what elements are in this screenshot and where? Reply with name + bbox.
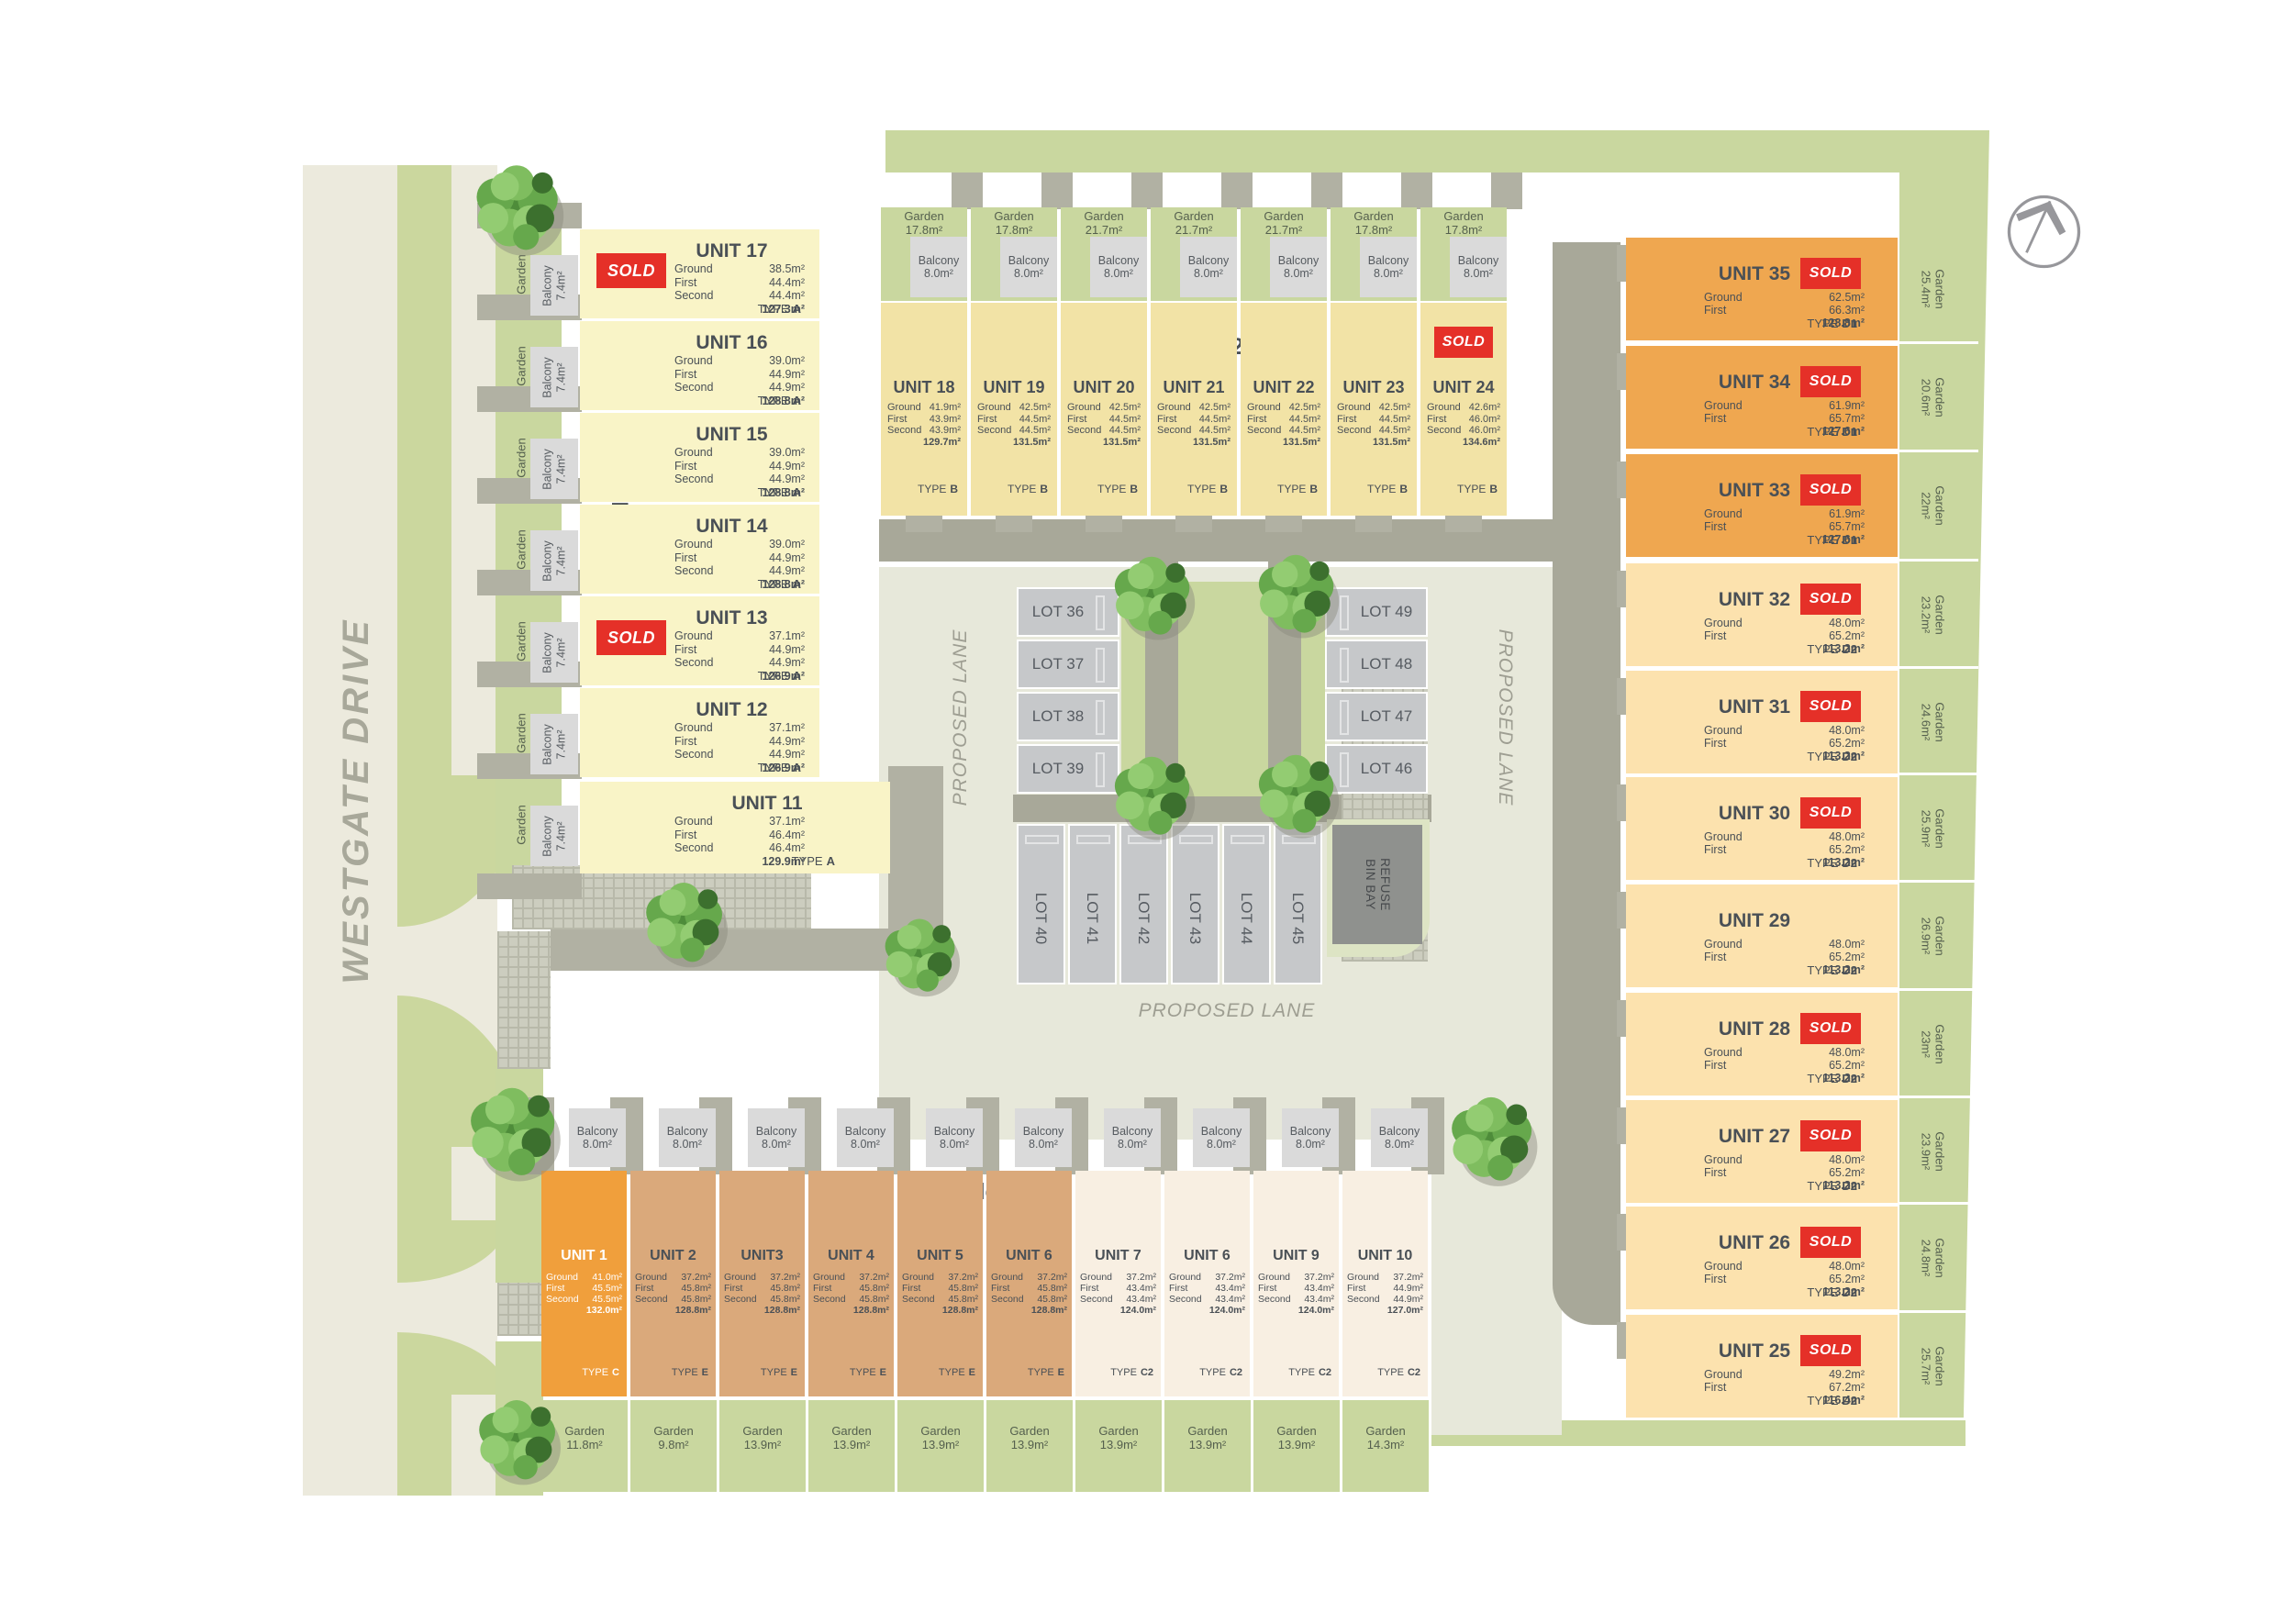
unit-type: TYPEA <box>758 394 801 407</box>
unit-type: TYPEB <box>1187 483 1228 495</box>
unit-areas: Ground37.2m²First45.8m²Second45.8m²128.8… <box>813 1272 889 1316</box>
unit-unit-12[interactable]: UNIT 12Ground37.1m²First44.9m²Second44.9… <box>580 688 819 777</box>
info-label: Ground <box>674 629 713 643</box>
info-value: 66.3m² <box>1829 304 1865 317</box>
balcony: Balcony8.0m² <box>1450 237 1507 297</box>
balcony: Balcony8.0m² <box>910 237 967 297</box>
garden-line2: 17.8m² <box>1420 223 1507 237</box>
info-label: Ground <box>1258 1272 1290 1283</box>
balcony-label: Balcony7.4m² <box>540 540 567 581</box>
unit-unit-21[interactable]: UNIT 21Ground42.5m²First44.5m²Second44.5… <box>1151 303 1237 516</box>
unit-type: TYPEB <box>1457 483 1498 495</box>
garden-label-line1: Garden <box>515 713 529 752</box>
info-label: Ground <box>674 721 713 735</box>
unit-unit-20[interactable]: UNIT 20Ground42.5m²First44.5m²Second44.5… <box>1061 303 1147 516</box>
info-row: Second45.5m² <box>546 1294 622 1305</box>
garden-label-text: Garden26.9m² <box>1920 916 1947 955</box>
lot-lot-38[interactable]: LOT 38 <box>1017 692 1119 741</box>
unit-type: TYPEB <box>1097 483 1138 495</box>
info-value: 43.4m² <box>1215 1283 1245 1294</box>
balcony: Balcony8.0m² <box>569 1108 626 1167</box>
balcony-line1: Balcony <box>1008 254 1049 268</box>
garden-label-text: Garden23m² <box>1920 1024 1947 1063</box>
unit-unit-25[interactable]: UNIT 25SOLDGround49.2m²First67.2m²116.4m… <box>1626 1315 1898 1418</box>
info-label: First <box>546 1283 564 1294</box>
balcony-line1: Balcony <box>845 1125 885 1139</box>
type-label: TYPE <box>1008 483 1036 495</box>
garden-label-line2: 23.2m² <box>1920 595 1933 634</box>
unit-unit-28[interactable]: UNIT 28SOLDGround48.0m²First65.2m²113.2m… <box>1626 993 1898 1096</box>
lot-label: LOT 38 <box>1032 707 1084 726</box>
info-label: Second <box>1258 1294 1291 1305</box>
info-row: First44.9m² <box>674 643 805 657</box>
balcony-label: Balcony8.0m² <box>577 1125 618 1151</box>
sold-badge: SOLD <box>1800 584 1861 615</box>
lot-lot-48[interactable]: LOT 48 <box>1325 640 1428 689</box>
info-value: 49.2m² <box>1829 1368 1865 1381</box>
info-value: 44.9m² <box>769 564 805 578</box>
balcony-line1: Balcony <box>756 1125 796 1139</box>
tree-icon <box>451 1070 573 1191</box>
lot-label: LOT 36 <box>1032 603 1084 621</box>
info-label: Ground <box>1169 1272 1201 1283</box>
info-value: 37.1m² <box>769 629 805 643</box>
unit-total-area: 131.5m² <box>1337 437 1410 449</box>
unit-name: UNIT 15 <box>653 424 810 446</box>
info-value: 61.9m² <box>1829 399 1865 412</box>
tree-icon <box>629 866 739 976</box>
info-row: Second43.4m² <box>1258 1294 1334 1305</box>
lot-lot-45[interactable]: LOT 45 <box>1274 824 1322 984</box>
unit-unit-15[interactable]: UNIT 15Ground39.0m²First44.9m²Second44.9… <box>580 413 819 502</box>
garden-line1: Garden <box>1253 1424 1340 1438</box>
info-label: Ground <box>887 402 921 414</box>
unit-name: UNIT 9 <box>1253 1248 1339 1264</box>
info-value: 39.0m² <box>769 538 805 551</box>
unit-total-area: 129.7m² <box>887 437 961 449</box>
info-value: 65.2m² <box>1829 843 1865 856</box>
info-row: Second43.4m² <box>1080 1294 1156 1305</box>
info-label: Second <box>1157 425 1191 437</box>
garden-label: Garden25.9m² <box>1901 777 1965 880</box>
unit-type: TYPED2 <box>1807 750 1857 763</box>
info-value: 45.8m² <box>681 1283 711 1294</box>
info-row: Ground41.0m² <box>546 1272 622 1283</box>
balcony-label: Balcony8.0m² <box>1201 1125 1242 1151</box>
balcony: Balcony8.0m² <box>1104 1108 1161 1167</box>
info-value: 37.1m² <box>769 815 805 829</box>
info-value: 48.0m² <box>1829 1046 1865 1059</box>
sold-badge: SOLD <box>1800 474 1861 506</box>
info-row: First65.2m² <box>1704 1059 1865 1072</box>
lot-lot-44[interactable]: LOT 44 <box>1222 824 1271 984</box>
balcony-line2: 8.0m² <box>1278 267 1319 281</box>
info-row: First43.4m² <box>1080 1283 1156 1294</box>
unit-name: UNIT 1 <box>541 1248 627 1264</box>
balcony-line1: Balcony <box>540 632 554 673</box>
unit-unit-34[interactable]: UNIT 34SOLDGround61.9m²First65.7m²127.6m… <box>1626 346 1898 449</box>
unit-total-area: 128.8m² <box>724 1305 800 1316</box>
unit-name: UNIT 12 <box>653 699 810 721</box>
unit-type: TYPED2 <box>1807 963 1857 977</box>
info-label: Ground <box>674 815 713 829</box>
garden-line1: Garden <box>986 1424 1073 1438</box>
sold-badge: SOLD <box>1800 1227 1861 1258</box>
balcony-line1: Balcony <box>540 724 554 764</box>
info-row: Ground42.6m² <box>1427 402 1500 414</box>
type-letter: A <box>793 302 801 316</box>
unit-areas: Ground37.2m²First45.8m²Second45.8m²128.8… <box>724 1272 800 1316</box>
balcony-line1: Balcony <box>540 357 554 397</box>
balcony: Balcony7.4m² <box>530 347 578 407</box>
info-value: 65.2m² <box>1829 737 1865 750</box>
unit-total-area: 127.0m² <box>1347 1305 1423 1316</box>
info-row: Ground49.2m² <box>1704 1368 1865 1381</box>
info-row: First46.0m² <box>1427 414 1500 426</box>
balcony: Balcony7.4m² <box>530 530 578 591</box>
unit-unit-27[interactable]: UNIT 27SOLDGround48.0m²First65.2m²113.2m… <box>1626 1100 1898 1203</box>
unit-type: TYPEA <box>792 854 835 868</box>
info-value: 39.0m² <box>769 354 805 368</box>
info-value: 44.5m² <box>1109 414 1141 426</box>
lot-label: LOT 43 <box>1186 892 1205 943</box>
balcony: Balcony8.0m² <box>837 1108 894 1167</box>
info-row: First44.5m² <box>1067 414 1141 426</box>
unit-unit-17[interactable]: UNIT 17SOLDGround38.5m²First44.4m²Second… <box>580 229 819 318</box>
type-letter: C2 <box>1141 1367 1153 1378</box>
garden-plot: Garden13.9m² <box>986 1400 1073 1492</box>
garden-label-line1: Garden <box>1933 269 1947 308</box>
info-label: First <box>991 1283 1009 1294</box>
garden-separator <box>1899 1202 1978 1205</box>
tree-icon <box>462 1384 572 1494</box>
balcony-line2: 8.0m² <box>1023 1138 1063 1151</box>
garden-label-text: Garden25.9m² <box>1920 808 1947 848</box>
info-value: 42.5m² <box>1109 402 1141 414</box>
info-row: First65.2m² <box>1704 737 1865 750</box>
unit-areas: Ground37.2m²First44.9m²Second44.9m²127.0… <box>1347 1272 1423 1316</box>
unit-unit-11[interactable]: UNIT 11Ground37.1m²First46.4m²Second46.4… <box>580 782 890 873</box>
info-label: Ground <box>724 1272 756 1283</box>
unit-type: TYPEE <box>939 1367 975 1378</box>
unit-name: UNIT 16 <box>653 332 810 354</box>
type-letter: D2 <box>1842 750 1857 763</box>
garden-label-line1: Garden <box>1933 485 1947 525</box>
balcony-label: Balcony8.0m² <box>1008 254 1049 281</box>
balcony-label: Balcony7.4m² <box>540 816 567 856</box>
balcony-line1: Balcony <box>1379 1125 1420 1139</box>
balcony: Balcony8.0m² <box>1000 237 1057 297</box>
info-row: First44.9m² <box>674 460 805 473</box>
garden-label-line2: 22m² <box>1920 485 1933 525</box>
balcony-line1: Balcony <box>540 265 554 306</box>
info-row: Ground42.5m² <box>977 402 1051 414</box>
unit-unit-4[interactable]: UNIT 4Ground37.2m²First45.8m²Second45.8m… <box>808 1171 894 1396</box>
unit-unit-29[interactable]: UNIT 29Ground48.0m²First65.2m²113.2m²TYP… <box>1626 884 1898 987</box>
info-value: 42.5m² <box>1019 402 1051 414</box>
parking-divider-icon <box>1096 648 1105 683</box>
info-value: 44.9m² <box>769 656 805 670</box>
unit-unit-22[interactable]: UNIT 22Ground42.5m²First44.5m²Second44.5… <box>1241 303 1327 516</box>
info-value: 45.8m² <box>948 1294 978 1305</box>
balcony-line2: 7.4m² <box>554 449 568 489</box>
info-row: Ground37.2m² <box>813 1272 889 1283</box>
info-row: Ground37.2m² <box>1258 1272 1334 1283</box>
info-label: Second <box>1067 425 1101 437</box>
type-label: TYPE <box>758 302 789 316</box>
type-label: TYPE <box>1807 425 1838 439</box>
info-label: Ground <box>1247 402 1281 414</box>
info-label: First <box>1704 843 1726 856</box>
garden-label-line2: 23m² <box>1920 1024 1933 1063</box>
unit-areas: Ground37.2m²First45.8m²Second45.8m²128.8… <box>991 1272 1067 1316</box>
info-value: 45.8m² <box>859 1283 889 1294</box>
info-value: 44.5m² <box>1289 425 1320 437</box>
info-value: 44.5m² <box>1109 425 1141 437</box>
unit-unit-6[interactable]: UNIT 6Ground37.2m²First43.4m²Second43.4m… <box>1164 1171 1250 1396</box>
tree-icon <box>1097 540 1206 649</box>
info-value: 65.7m² <box>1829 520 1865 533</box>
type-letter: B <box>1040 483 1048 495</box>
info-row: First65.2m² <box>1704 1273 1865 1285</box>
sold-badge: SOLD <box>1800 1335 1861 1366</box>
info-row: Ground37.2m² <box>724 1272 800 1283</box>
info-row: First65.2m² <box>1704 843 1865 856</box>
info-row: Second45.8m² <box>902 1294 978 1305</box>
info-label: First <box>674 460 696 473</box>
info-row: First45.8m² <box>902 1283 978 1294</box>
unit-unit-10[interactable]: UNIT 10Ground37.2m²First44.9m²Second44.9… <box>1342 1171 1428 1396</box>
unit-unit-30[interactable]: UNIT 30SOLDGround48.0m²First65.2m²113.2m… <box>1626 777 1898 880</box>
garden-label-text: Garden20.6m² <box>1920 377 1947 417</box>
type-letter: D2 <box>1842 642 1857 656</box>
info-value: 48.0m² <box>1829 830 1865 843</box>
unit-type: TYPEE <box>672 1367 708 1378</box>
balcony-label: Balcony8.0m² <box>1023 1125 1063 1151</box>
unit-unit-7[interactable]: UNIT 7Ground37.2m²First43.4m²Second43.4m… <box>1075 1171 1161 1396</box>
info-value: 65.2m² <box>1829 1166 1865 1179</box>
garden-label: Garden26.9m² <box>1901 884 1965 987</box>
lot-lot-47[interactable]: LOT 47 <box>1325 692 1428 741</box>
unit-total-area: 128.8m² <box>813 1305 889 1316</box>
info-value: 45.8m² <box>770 1283 800 1294</box>
garden-label-line2: 24.8m² <box>1920 1238 1933 1277</box>
info-row: First66.3m² <box>1704 304 1865 317</box>
type-label: TYPE <box>1288 1367 1315 1378</box>
unit-unit-35[interactable]: UNIT 35SOLDGround62.5m²First66.3m²128.8m… <box>1626 238 1898 340</box>
balcony-label: Balcony8.0m² <box>756 1125 796 1151</box>
unit-unit-6[interactable]: UNIT 6Ground37.2m²First45.8m²Second45.8m… <box>986 1171 1072 1396</box>
info-row: Second44.9m² <box>674 381 805 395</box>
info-value: 44.9m² <box>769 381 805 395</box>
info-label: Ground <box>1704 724 1743 737</box>
unit-unit-13[interactable]: UNIT 13SOLDGround37.1m²First44.9m²Second… <box>580 596 819 685</box>
unit-unit-23[interactable]: UNIT 23Ground42.5m²First44.5m²Second44.5… <box>1331 303 1417 516</box>
info-label: Ground <box>1704 1046 1743 1059</box>
type-letter: C2 <box>1319 1367 1331 1378</box>
type-label: TYPE <box>1807 963 1838 977</box>
type-letter: E <box>880 1367 886 1378</box>
garden-label-text: Garden25.4m² <box>1920 269 1947 308</box>
info-label: First <box>1427 414 1446 426</box>
proposed-lane-label-right: PROPOSED LANE <box>1485 587 1525 848</box>
garden-separator <box>1899 450 1978 452</box>
info-value: 46.4m² <box>769 829 805 842</box>
unit-areas: Ground41.9m²First43.9m²Second43.9m²129.7… <box>887 402 961 448</box>
info-row: Second45.8m² <box>813 1294 889 1305</box>
unit-name: UNIT 23 <box>1331 378 1417 397</box>
refuse-label: REFUSE BIN BAY <box>1363 858 1392 911</box>
unit-unit-31[interactable]: UNIT 31SOLDGround48.0m²First65.2m²113.2m… <box>1626 671 1898 773</box>
proposed-lane-label-left: PROPOSED LANE <box>941 587 981 848</box>
lane-block4 <box>1553 242 1620 1325</box>
info-value: 42.6m² <box>1469 402 1500 414</box>
info-value: 37.2m² <box>1037 1272 1067 1283</box>
balcony-line2: 7.4m² <box>554 816 568 856</box>
balcony-line1: Balcony <box>1290 1125 1331 1139</box>
garden-label-line1: Garden <box>515 805 529 844</box>
unit-name: UNIT 7 <box>1075 1248 1161 1264</box>
driveway <box>952 172 983 209</box>
info-value: 44.5m² <box>1379 414 1410 426</box>
garden-line1: Garden <box>1342 1424 1429 1438</box>
lot-label: LOT 37 <box>1032 655 1084 673</box>
info-label: Ground <box>1157 402 1191 414</box>
unit-name: UNIT 5 <box>897 1248 983 1264</box>
info-value: 43.4m² <box>1215 1294 1245 1305</box>
balcony-line2: 8.0m² <box>845 1138 885 1151</box>
unit-total-area: 124.0m² <box>1080 1305 1156 1316</box>
balcony-label: Balcony8.0m² <box>1278 254 1319 281</box>
unit-name: UNIT 6 <box>986 1248 1072 1264</box>
type-label: TYPE <box>1807 750 1838 763</box>
unit-unit-18[interactable]: UNIT 18Ground41.9m²First43.9m²Second43.9… <box>881 303 967 516</box>
info-row: Second44.5m² <box>1337 425 1410 437</box>
unit-unit-16[interactable]: UNIT 16Ground39.0m²First44.9m²Second44.9… <box>580 321 819 410</box>
garden-plot: Garden13.9m² <box>1075 1400 1162 1492</box>
info-row: First44.5m² <box>1247 414 1320 426</box>
garden-separator <box>1899 988 1978 991</box>
unit-name: UNIT 10 <box>1342 1248 1428 1264</box>
info-label: Ground <box>1704 507 1743 520</box>
balcony-label: Balcony8.0m² <box>919 254 959 281</box>
garden-line2: 17.8m² <box>1331 223 1417 237</box>
info-value: 37.2m² <box>770 1272 800 1283</box>
info-row: Ground42.5m² <box>1337 402 1410 414</box>
type-label: TYPE <box>1457 483 1486 495</box>
unit-unit-24[interactable]: UNIT 24SOLDGround42.6m²First46.0m²Second… <box>1420 303 1507 516</box>
driveway <box>1311 172 1342 209</box>
info-label: Ground <box>1704 291 1743 304</box>
info-label: Second <box>674 473 713 486</box>
garden-line2: 21.7m² <box>1061 223 1147 237</box>
balcony: Balcony8.0m² <box>926 1108 983 1167</box>
lot-label: LOT 39 <box>1032 760 1084 778</box>
info-label: First <box>1704 1166 1726 1179</box>
info-label: First <box>674 643 696 657</box>
balcony-label: Balcony8.0m² <box>1458 254 1498 281</box>
unit-type: TYPEC2 <box>1377 1367 1420 1378</box>
info-label: First <box>1704 629 1726 642</box>
info-value: 42.5m² <box>1289 402 1320 414</box>
info-row: Ground48.0m² <box>1704 724 1865 737</box>
garden-plot: Garden13.9m² <box>1164 1400 1251 1492</box>
garden-label: Garden22m² <box>1901 454 1965 557</box>
unit-areas: Ground37.2m²First43.4m²Second43.4m²124.0… <box>1258 1272 1334 1316</box>
unit-unit3[interactable]: UNIT3Ground37.2m²First45.8m²Second45.8m²… <box>719 1171 805 1396</box>
unit-unit-33[interactable]: UNIT 33SOLDGround61.9m²First65.7m²127.6m… <box>1626 454 1898 557</box>
unit-unit-5[interactable]: UNIT 5Ground37.2m²First45.8m²Second45.8m… <box>897 1171 983 1396</box>
balcony-line2: 7.4m² <box>554 265 568 306</box>
info-row: First45.8m² <box>991 1283 1067 1294</box>
unit-name: UNIT 29 <box>1681 910 1828 932</box>
garden-label-line1: Garden <box>515 438 529 477</box>
unit-unit-14[interactable]: UNIT 14Ground39.0m²First44.9m²Second44.9… <box>580 505 819 594</box>
garden-line1: Garden <box>881 209 967 223</box>
info-row: Second43.4m² <box>1169 1294 1245 1305</box>
unit-unit-2[interactable]: UNIT 2Ground37.2m²First45.8m²Second45.8m… <box>630 1171 716 1396</box>
info-value: 37.2m² <box>859 1272 889 1283</box>
unit-unit-32[interactable]: UNIT 32SOLDGround48.0m²First65.2m²113.2m… <box>1626 563 1898 666</box>
garden-label-line1: Garden <box>1933 595 1947 634</box>
type-letter: E <box>1058 1367 1064 1378</box>
balcony-line1: Balcony <box>1188 254 1229 268</box>
garden-label-line1: Garden <box>1933 702 1947 741</box>
unit-name: UNIT 6 <box>1164 1248 1250 1264</box>
boundary-green-top <box>885 130 1987 172</box>
unit-unit-26[interactable]: UNIT 26SOLDGround48.0m²First65.2m²113.2m… <box>1626 1207 1898 1309</box>
info-row: First65.7m² <box>1704 520 1865 533</box>
type-letter: D1 <box>1842 533 1857 547</box>
lot-lot-40[interactable]: LOT 40 <box>1017 824 1065 984</box>
garden-line1: Garden <box>808 1424 895 1438</box>
garden-label-line2: 25.7m² <box>1920 1346 1933 1385</box>
balcony-line1: Balcony <box>540 540 554 581</box>
info-label: Second <box>813 1294 846 1305</box>
unit-unit-9[interactable]: UNIT 9Ground37.2m²First43.4m²Second43.4m… <box>1253 1171 1339 1396</box>
info-label: Ground <box>977 402 1011 414</box>
unit-unit-19[interactable]: UNIT 19Ground42.5m²First44.5m²Second44.5… <box>971 303 1057 516</box>
unit-unit-1[interactable]: UNIT 1Ground41.0m²First45.5m²Second45.5m… <box>541 1171 627 1396</box>
info-label: First <box>1169 1283 1187 1294</box>
unit-name: UNIT 2 <box>630 1248 716 1264</box>
garden-label: Garden21.7m² <box>1061 209 1147 239</box>
type-label: TYPE <box>758 761 789 774</box>
info-value: 45.8m² <box>1037 1294 1067 1305</box>
info-label: First <box>902 1283 920 1294</box>
garden-label-text: Garden22m² <box>1920 485 1947 525</box>
info-row: First46.4m² <box>674 829 805 842</box>
garden-label: Garden24.8m² <box>1901 1207 1965 1309</box>
info-label: First <box>1704 1059 1726 1072</box>
info-row: First43.4m² <box>1169 1283 1245 1294</box>
info-label: Second <box>887 425 921 437</box>
info-row: Second46.0m² <box>1427 425 1500 437</box>
balcony-line2: 8.0m² <box>1368 267 1409 281</box>
balcony-label: Balcony7.4m² <box>540 724 567 764</box>
info-row: Ground48.0m² <box>1704 1153 1865 1166</box>
unit-type: TYPEE <box>1028 1367 1064 1378</box>
sold-badge: SOLD <box>1800 366 1861 397</box>
unit-total-area: 124.0m² <box>1258 1305 1334 1316</box>
info-row: First65.7m² <box>1704 412 1865 425</box>
info-row: First44.4m² <box>674 276 805 290</box>
info-label: Second <box>674 656 713 670</box>
garden-line1: Garden <box>1164 1424 1251 1438</box>
info-value: 39.0m² <box>769 446 805 460</box>
balcony-line1: Balcony <box>1098 254 1139 268</box>
unit-type: TYPEE <box>850 1367 886 1378</box>
